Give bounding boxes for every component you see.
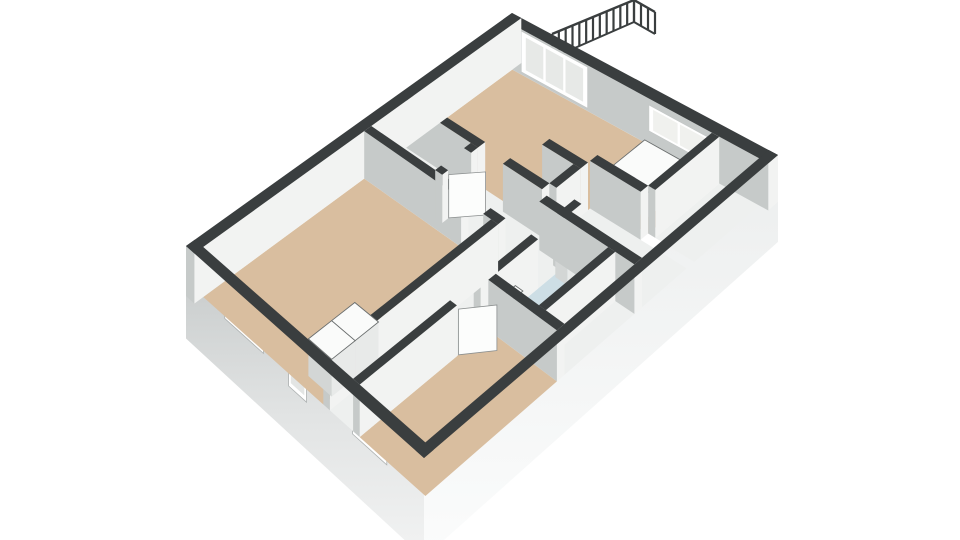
wall-alcove-left-face-se <box>641 186 649 240</box>
floorplan-3d-canvas <box>0 0 960 540</box>
wall-closet-jamb-left-face-sw <box>435 170 442 223</box>
door-leaf-bedroom-2 <box>459 305 497 355</box>
wall-living-stub-face-se <box>581 163 588 217</box>
wall-closet-jamb-left-face-se <box>442 170 448 223</box>
railing-return-top-rail <box>634 0 655 12</box>
facade-nw-face-sw <box>186 246 194 304</box>
railing-return-bottom-rail <box>634 22 655 34</box>
wall-alcove-south-face-sw <box>648 186 655 238</box>
door-leaf-entry-closet <box>449 172 486 218</box>
floorplan-3d-viewport <box>0 0 960 540</box>
facade-ne-face-se <box>768 155 778 211</box>
